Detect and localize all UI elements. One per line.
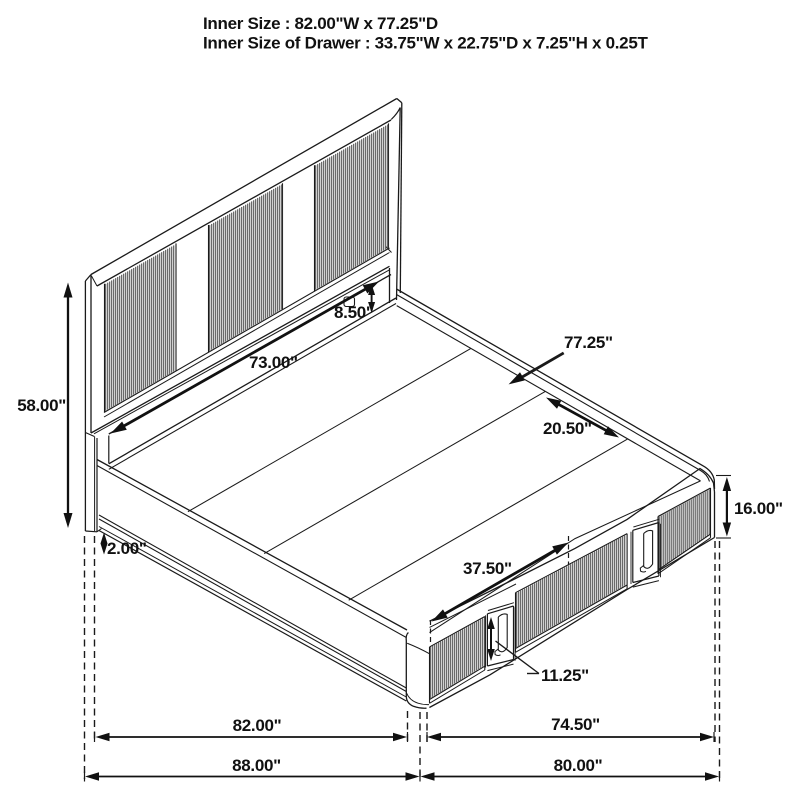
svg-text:Inner Size of Drawer : 33.75"W: Inner Size of Drawer : 33.75"W x 22.75"D…	[203, 34, 648, 53]
svg-text:Inner Size : 82.00"W x 77.25"D: Inner Size : 82.00"W x 77.25"D	[203, 14, 438, 33]
svg-text:11.25": 11.25"	[541, 666, 589, 685]
svg-text:2.00": 2.00"	[107, 539, 147, 558]
svg-text:20.50": 20.50"	[543, 419, 592, 438]
svg-text:74.50": 74.50"	[551, 715, 600, 734]
svg-text:73.00": 73.00"	[249, 353, 298, 372]
svg-text:77.25": 77.25"	[564, 333, 613, 352]
svg-text:16.00": 16.00"	[734, 499, 783, 518]
svg-text:8.50": 8.50"	[334, 303, 374, 322]
svg-text:82.00": 82.00"	[233, 716, 282, 735]
svg-text:80.00": 80.00"	[554, 756, 603, 775]
svg-text:37.50": 37.50"	[463, 559, 512, 578]
svg-text:58.00": 58.00"	[17, 396, 66, 415]
svg-text:88.00": 88.00"	[232, 756, 281, 775]
